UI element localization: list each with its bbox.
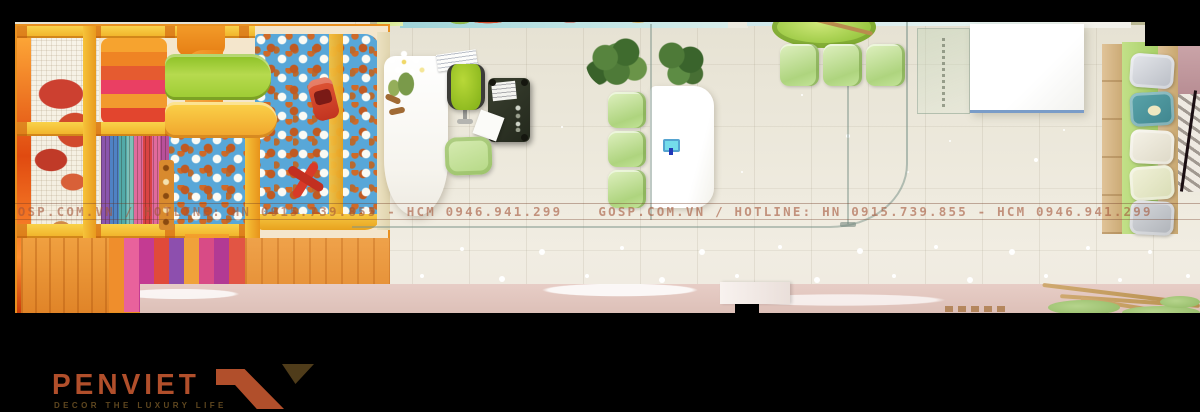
entry-step: [720, 282, 790, 304]
pillow: [1129, 129, 1175, 165]
pillow: [1129, 165, 1175, 202]
indoor-playground: [15, 24, 390, 313]
penviet-logo: PENVIET DECOR THE LUXURY LIFE: [52, 368, 332, 410]
walkway: [140, 284, 1200, 313]
dining-chair: [823, 44, 862, 86]
v-mark-orange-shape: [216, 369, 284, 409]
letterbox-left: [0, 0, 15, 412]
letterbox-top-right: [1145, 0, 1200, 46]
watermark-rule: [0, 219, 1200, 220]
glass-vertical-lettering: [942, 37, 945, 107]
wooden-deck: [21, 238, 109, 313]
pillow: [1129, 53, 1175, 90]
v-mark-dark-shape: [282, 364, 314, 384]
yellow-slide: [165, 102, 277, 138]
staircase: [1178, 40, 1200, 192]
watermark-ticker: GOSP.COM.VN / HOTLINE: HN 0915.739.855 -…: [8, 204, 1200, 219]
letterbox-top: [0, 0, 1200, 22]
ball-pit-beam: [329, 34, 343, 214]
green-slide: [165, 54, 271, 100]
render-canvas: GOSP.COM.VN / HOTLINE: HN 0915.739.855 -…: [0, 0, 1200, 412]
watermark-text: GOSP.COM.VN / HOTLINE: HN 0915.739.855 -…: [8, 204, 562, 219]
brand-v-mark-icon: [216, 364, 316, 410]
display-cube: [970, 24, 1084, 113]
dining-chair: [780, 44, 819, 86]
plant-leaves: [1160, 296, 1200, 308]
stair-landing: [1178, 40, 1200, 94]
pillow: [1129, 91, 1175, 127]
render-edge-notch: [735, 304, 759, 313]
glass-partition-base: [840, 222, 856, 227]
glass-pane: [917, 28, 970, 114]
brand-wordmark: PENVIET: [52, 368, 200, 401]
watermark-text: GOSP.COM.VN / HOTLINE: HN 0915.739.855 -…: [598, 204, 1152, 219]
foam-roller-stack: [101, 38, 167, 124]
floor-marking: [945, 306, 1007, 312]
glass-partition: [650, 24, 652, 220]
brand-tagline: DECOR THE LUXURY LIFE: [54, 401, 227, 410]
dining-chair: [866, 44, 905, 86]
